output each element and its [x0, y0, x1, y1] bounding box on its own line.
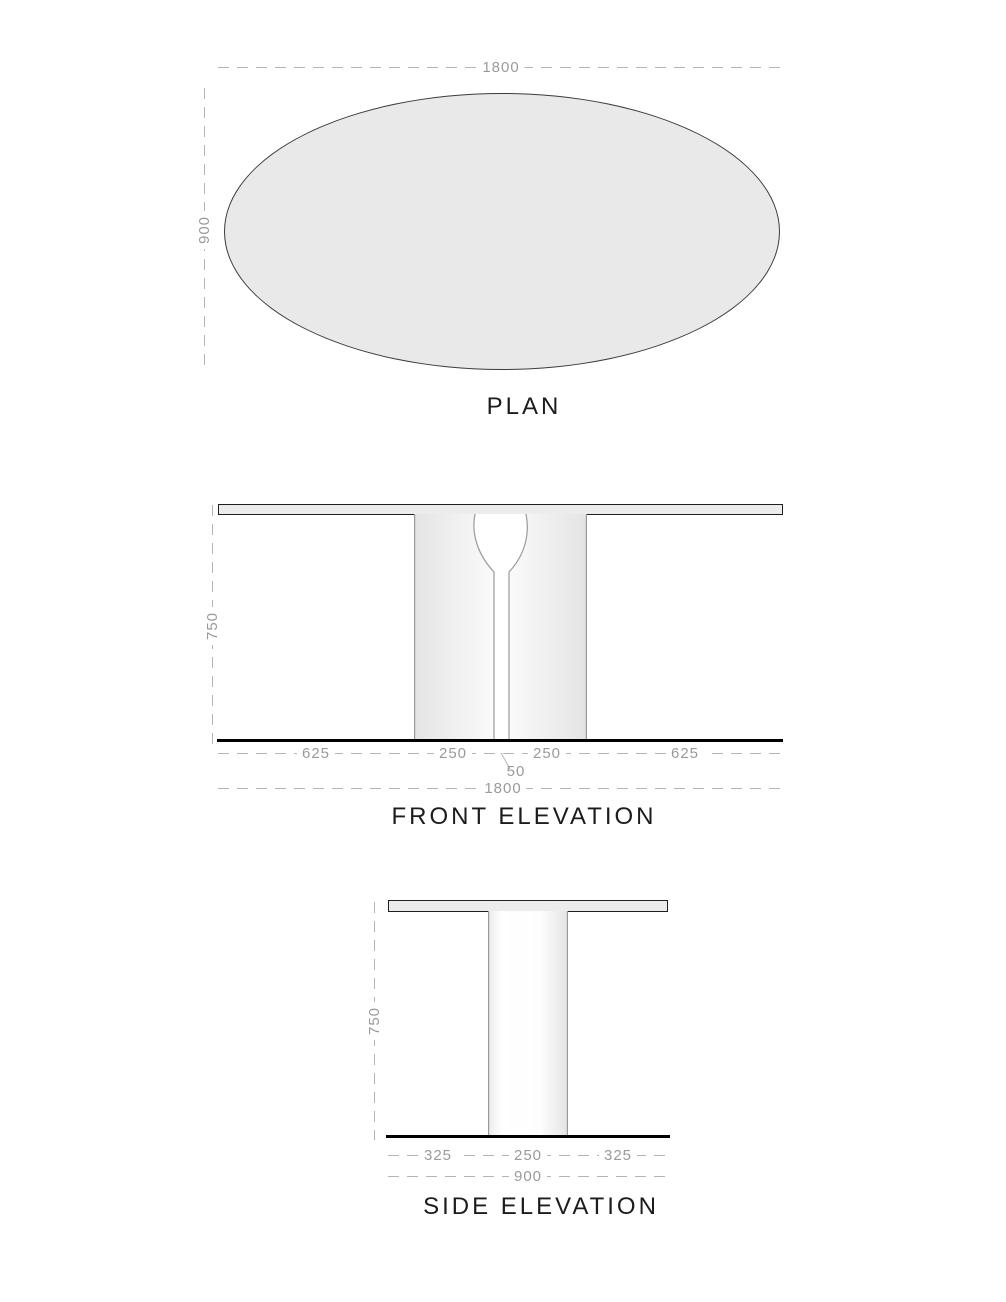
oval-tabletop-outline	[224, 93, 780, 370]
side-pedestal-column	[488, 911, 568, 1136]
front-height-dimension-text: 750	[205, 607, 222, 645]
side-segment-dim-325-left: 325	[419, 1148, 457, 1165]
technical-drawing-sheet: 1800 900 PLAN 750	[0, 0, 1006, 1302]
front-pedestal-column	[414, 514, 587, 740]
front-elevation-title: FRONT ELEVATION	[391, 803, 656, 831]
plan-view-title: PLAN	[487, 393, 562, 421]
front-gap-dimension-text: 50	[502, 764, 531, 781]
side-column-body	[488, 911, 568, 1136]
front-segment-dim-250-right: 250	[528, 746, 566, 763]
side-elevation-title: SIDE ELEVATION	[423, 1193, 659, 1221]
side-floor-line	[386, 1135, 670, 1138]
plan-width-dimension-text: 1800	[477, 60, 524, 77]
front-segment-dim-625-right: 625	[666, 746, 704, 763]
front-overall-dimension-text: 1800	[479, 781, 526, 798]
side-segment-dim-325-right: 325	[599, 1148, 637, 1165]
side-overall-dimension-text: 900	[509, 1169, 547, 1186]
front-segment-dim-625-left: 625	[297, 746, 335, 763]
plan-depth-dimension-text: 900	[197, 211, 214, 249]
front-floor-line	[217, 739, 783, 742]
side-height-dimension-text: 750	[367, 1002, 384, 1040]
front-segment-dim-250-left: 250	[434, 746, 472, 763]
side-segment-dim-250: 250	[509, 1148, 547, 1165]
